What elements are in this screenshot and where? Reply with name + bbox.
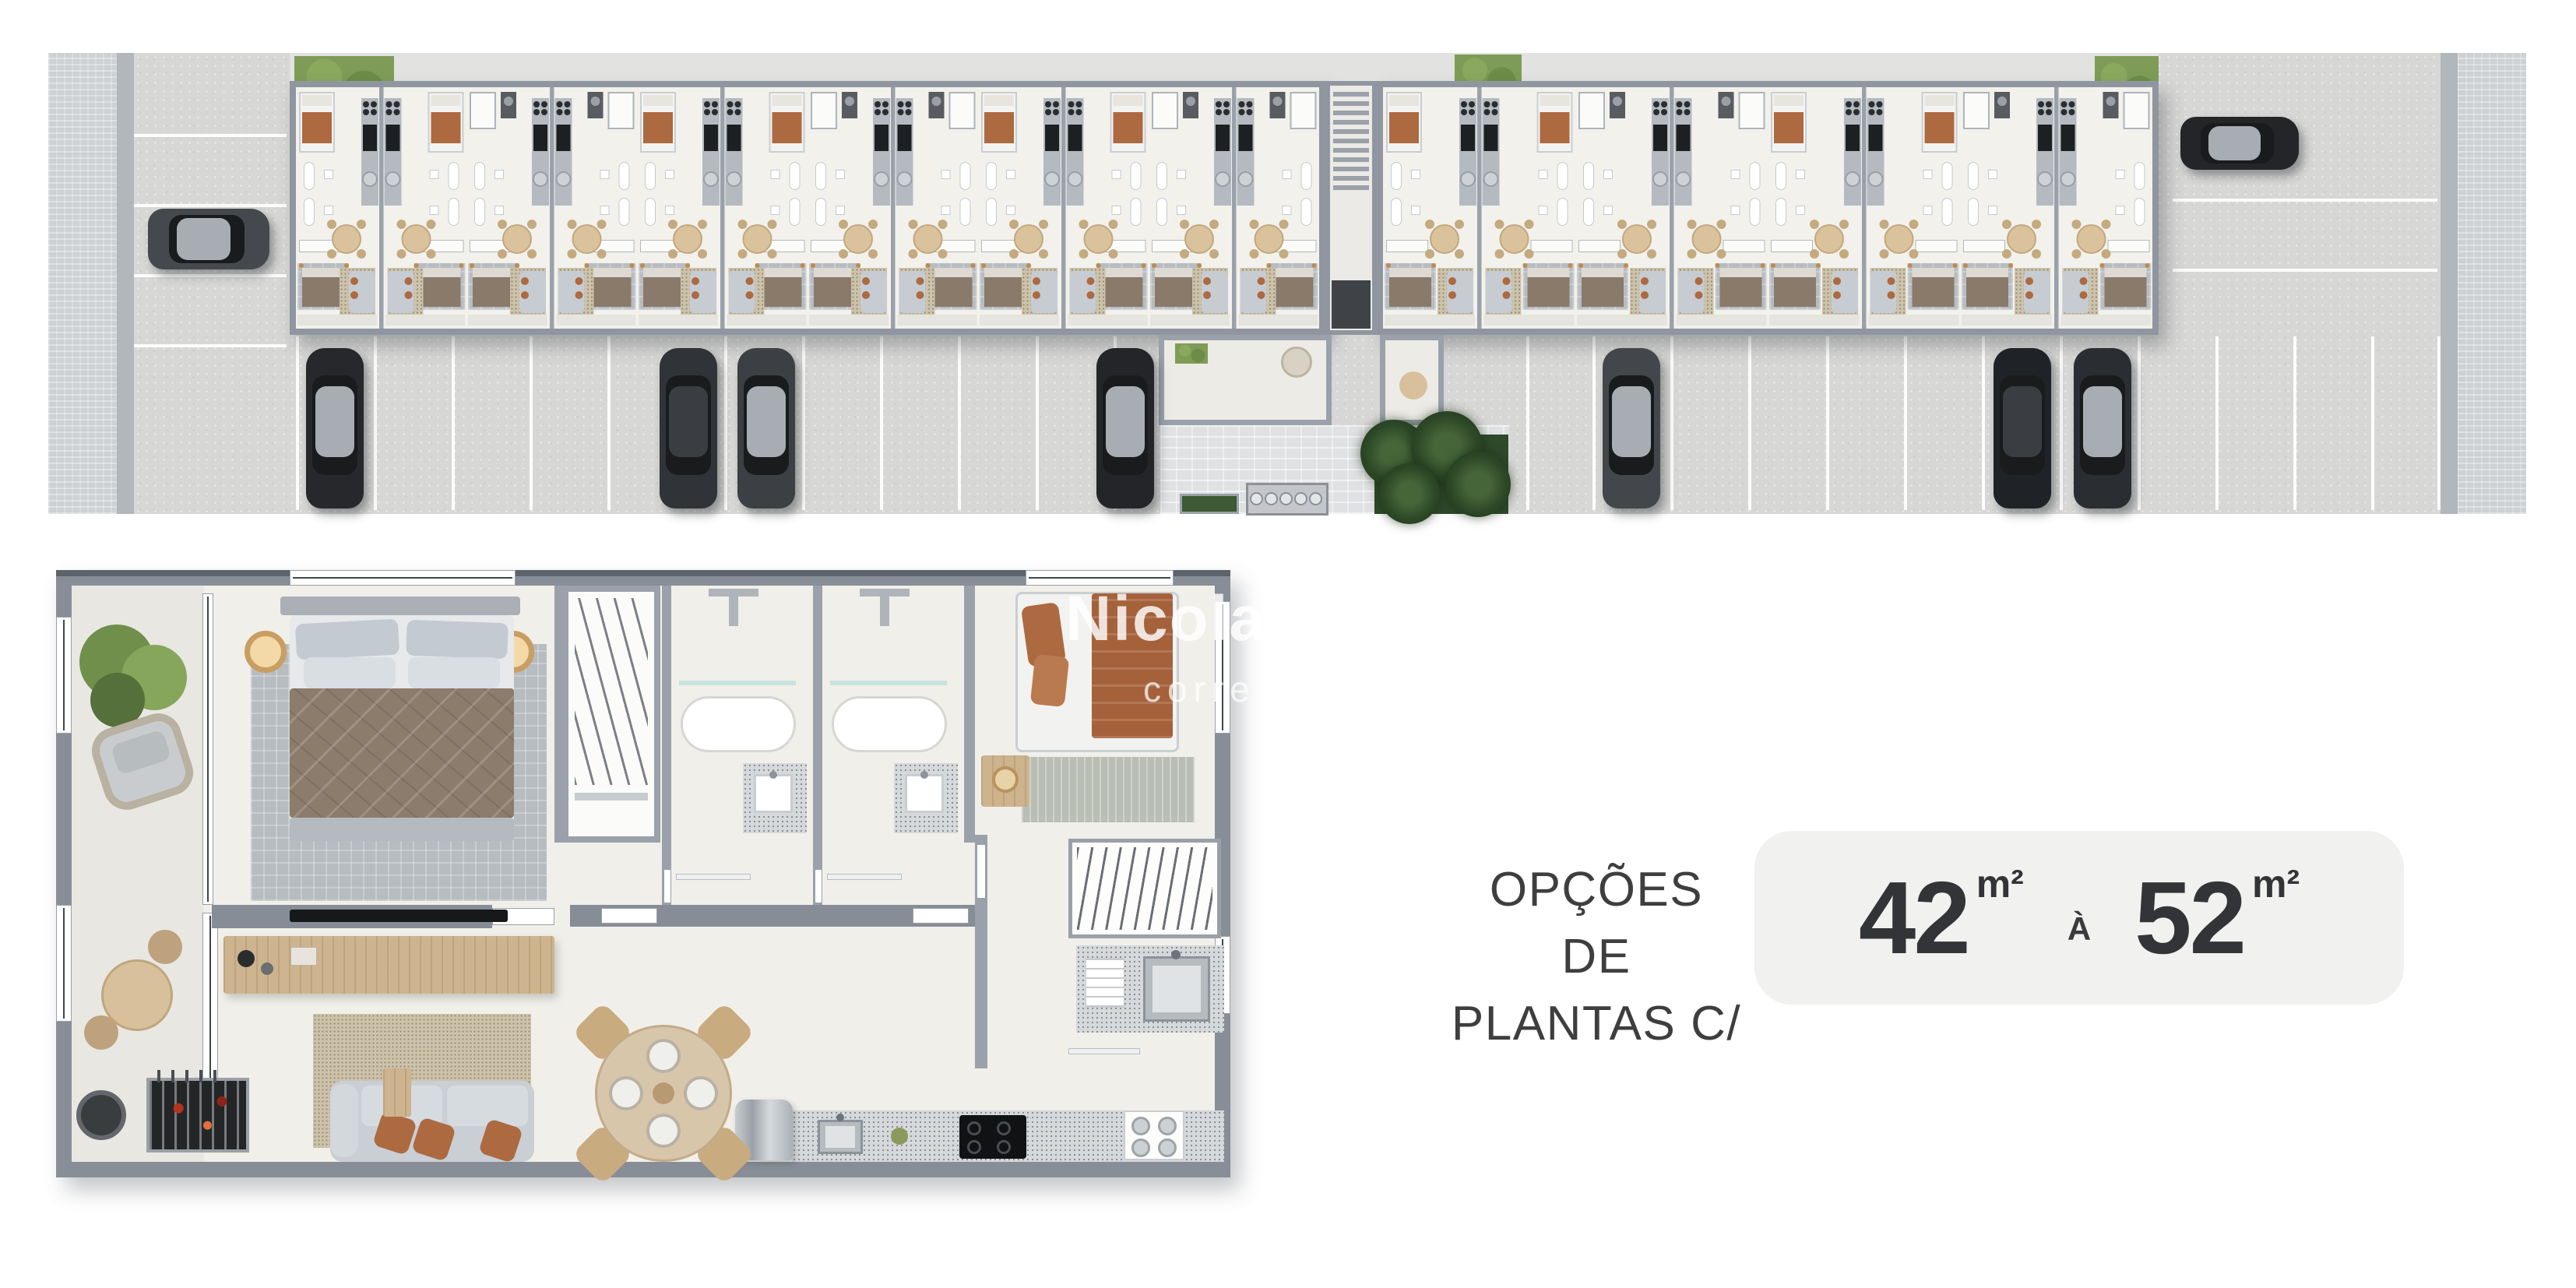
unit-oven [533,125,547,151]
unit-bathtub [789,162,800,190]
unit-module [637,87,723,329]
parking-line [802,336,805,510]
unit-bed-pillow [1100,268,1142,277]
unit-cooktop-burner [1869,101,1875,107]
unit-dining-table [1692,224,1722,254]
terrace-stool [148,930,182,964]
sofa-armrest [330,1084,358,1157]
unit-bathtub [448,198,459,226]
unit-drying-rack [607,92,634,129]
unit-bed-pillow [1924,95,1954,106]
window-pane [1029,577,1170,579]
unit-sink [665,170,674,179]
caption: OPÇÕES DE PLANTAS C/ 42 m² À 52 m² [1448,825,2430,1012]
bedroom2-rug [1022,757,1195,822]
unit-lamp [2008,263,2013,268]
unit-sofa-pillow [746,291,754,299]
unit-counter-pot [1068,171,1083,187]
unit-cooktop-burner [363,109,369,115]
parking-line [1670,336,1673,510]
unit-dining-chair [1810,249,1819,259]
car-roof [1106,386,1145,457]
unit-sofa-pillow [2080,291,2088,299]
plate [1131,1117,1150,1135]
unit-dining-chair [1279,249,1289,259]
unit-sink [1988,206,1997,215]
bathtub [832,696,947,752]
parking-line [1592,336,1596,510]
bed-foot-bench [290,818,514,841]
unit-cooktop-burner [1484,109,1490,115]
console-decor [238,950,255,967]
unit-washer-lid [1721,97,1730,106]
unit-lamp [299,263,304,268]
unit-oven [557,125,571,151]
unit-dining-chair [1209,249,1219,259]
gas-bottle [1294,492,1307,505]
gas-bottle [1309,492,1322,505]
glass-shelf [830,681,947,685]
unit-bathtub [1391,162,1402,190]
unit-cooktop-burner [1869,109,1875,115]
unit-sofa-pillow [575,277,583,285]
building-right-wing [1377,81,2159,335]
unit-cooktop-burner [875,109,881,115]
unit-dining-chair [397,249,406,259]
unit-sofa-pillow [521,291,529,299]
glass-pane [207,596,209,902]
area-min-value: 42 [1859,859,1969,977]
unit-cooktop-burner [704,109,710,115]
window-pane [293,577,512,579]
unit-cooktop-burner [1053,109,1059,115]
unit-dining-chair [527,220,537,229]
unit-dining-chair [1455,220,1464,229]
unit-bed-blanket [772,112,801,143]
unit-cooktop-burner [1677,109,1683,115]
unit-counter-pot [703,171,719,187]
unit-dining-chair [327,249,336,259]
window-opening [56,617,72,734]
caption-title-line2: PLANTAS C/ [1448,991,1744,1057]
stairs-step [1333,111,1369,115]
unit-oven [1653,125,1667,151]
unit-dining-chair [2002,220,2011,229]
unit-counter-pot [362,171,378,187]
unit-sink [429,170,438,179]
unit-sofa-pillow [1087,291,1095,299]
bathtub [681,696,796,752]
unit-lamp [970,263,975,268]
unit-washer-lid [1613,97,1622,106]
unit-dining-table [1884,224,1914,254]
sink-faucet [769,771,777,779]
unit-dining-chair [1687,220,1697,229]
unit-closet [1723,240,1765,252]
unit-dining-table [402,224,431,254]
unit-cooktop-burner [1247,109,1253,115]
unit-counter-pot [1044,171,1060,187]
gas-bottle [1265,492,1278,505]
unit-cooktop-burner [2038,101,2044,107]
unit-counter-pot [1460,171,1476,187]
sink-faucet [836,1114,844,1121]
unit-sink [494,170,504,179]
terrace-chair [1281,347,1312,378]
unit-dining-chair [1250,249,1259,259]
unit-cooktop-burner [1223,101,1230,107]
unit-bathtub [618,162,629,190]
unit-bathtub [1391,198,1402,226]
unit-bathtub [645,198,656,226]
table-centerpiece [653,1082,674,1104]
unit-sink [2115,206,2124,215]
unit-cooktop-burner [2069,101,2075,107]
unit-bed-pillow [772,95,801,106]
unit-bed-blanket [1113,112,1142,143]
console-decor [290,947,317,966]
unit-lamp [1311,263,1316,268]
unit-dining-chair [768,249,777,259]
unit-cooktop-burner [898,109,904,115]
unit-patio [1068,315,1148,326]
unit-oven [875,125,889,151]
rack-slats [1077,847,1212,930]
unit-dining-chair [1839,249,1849,259]
bathroom-wall [813,586,822,905]
counter-plant [891,1128,908,1145]
unit-sink [1411,170,1420,179]
parked-car [2074,348,2131,509]
unit-dining-chair [527,249,537,259]
parking-line [2173,199,2437,202]
unit-bathtub [1968,198,1979,226]
unit-bathtub [645,162,656,190]
unit-counter-pot [556,171,572,187]
cooktop [959,1115,1026,1159]
unit-sink [324,170,333,179]
unit-lamp [1152,263,1156,268]
unit-cooktop-burner [1684,109,1691,115]
bed-pillow [406,620,509,660]
unit-cooktop-burner [1045,101,1051,107]
unit-bathtub [1300,162,1311,190]
unit-bathtub [959,162,970,190]
parking-line [958,336,961,510]
unit-sink [1603,206,1613,215]
unit-sofa-pillow [1695,277,1703,285]
window-pane [63,620,65,730]
closet [562,586,660,843]
unit-module [1064,87,1149,329]
unit-sofa-pillow [2025,291,2033,299]
unit-sofa-pillow [862,291,870,299]
stairs-step [1333,176,1369,181]
unit-patio [1150,315,1230,326]
table-lamp [992,766,1019,793]
unit-sofa-pillow [1203,291,1211,299]
terrace-bush [1175,343,1208,364]
unit-dining-chair [597,220,607,229]
drying-rack [1068,839,1221,938]
unit-module [2057,87,2153,329]
unit-bathtub [1156,162,1167,190]
car-roof [177,218,231,260]
parking-line [1526,336,1529,510]
unit-bed-pillow [930,268,972,277]
unit-cooktop-burner [386,109,392,115]
unit-bathtub [1557,162,1568,190]
back-sidewalk [290,53,2159,84]
unit-sink [600,206,609,215]
unit-bathtub [618,198,629,226]
caption-title: OPÇÕES DE PLANTAS C/ [1448,857,1744,1057]
unit-closet [1530,240,1572,252]
unit-bathtub [474,162,485,190]
unit-dining-chair [868,220,878,229]
unit-counter-pot [1676,171,1691,187]
unit-oven [1068,125,1082,151]
unit-bathtub [986,162,997,190]
parked-car [2180,117,2299,170]
unit-cooktop-burner [565,109,571,115]
unit-cooktop-burner [898,101,904,107]
parking-line [134,344,287,347]
unit-cooktop-burner [541,109,547,115]
unit-drying-rack [948,92,975,129]
unit-cooktop-burner [1484,101,1490,107]
unit-bed-pillow [1774,95,1804,106]
unit-oven [704,125,718,151]
unit-bed-pillow [589,268,631,277]
tv-console [223,936,554,994]
unit-dining-chair [1209,220,1219,229]
watermark: Nicolas corre [1065,582,1304,710]
sofa [330,1081,534,1162]
sink-faucet [920,771,928,779]
car-roof [2003,386,2042,457]
unit-cooktop-burner [533,101,540,107]
parking-line [1982,336,1985,510]
unit-cooktop-burner [1068,101,1075,107]
unit-washer-lid [1186,97,1195,106]
unit-dining-chair [1425,220,1434,229]
unit-closet [1771,240,1813,252]
parking-line [2215,336,2219,510]
unit-cooktop-burner [1653,101,1659,107]
storage-room [1332,280,1371,329]
charcoal-grill [146,1078,249,1153]
unit-bed-pillow [431,95,460,106]
unit-dining-chair [668,220,677,229]
unit-drying-rack [1963,92,1990,129]
unit-sink [2115,170,2124,179]
unit-lamp [1907,263,1912,268]
unit-patio [1484,315,1575,326]
unit-sink [1730,206,1740,215]
unit-sofa-pillow [1087,277,1095,285]
unit-patio [297,315,377,326]
unit-module [978,87,1064,329]
unit-dining-chair [1039,249,1048,259]
unit-bathtub [1775,198,1786,226]
unit-cooktop-burner [2061,109,2067,115]
unit-sink [770,206,779,215]
stairs-step [1333,92,1369,97]
unit-dining-chair [2102,220,2111,229]
unit-dining-table [502,224,532,254]
unit-sofa-pillow [1888,277,1895,285]
unit-bed-pillow [1389,268,1431,277]
unit-dining-table [1500,224,1529,254]
unit-bed-pillow [473,268,515,277]
unit-sofa-pillow [1503,291,1511,299]
unit-dining-table [1430,224,1459,254]
unit-cooktop-burner [1846,101,1852,107]
unit-sofa-pillow [1888,291,1895,299]
interior-wall [554,586,564,843]
unit-bed-pillow [984,95,1014,106]
unit-cooktop-burner [1461,109,1467,115]
unit-closet [1386,240,1428,252]
unit-patio [1769,315,1860,326]
unit-bathtub [1130,162,1141,190]
unit-module [1480,87,1576,329]
unit-cooktop-burner [906,101,912,107]
unit-counter-pot [385,171,401,187]
unit-patio [1869,315,1959,326]
unit-counter-pot [533,171,548,187]
window-opening [290,570,516,586]
unit-bathtub [1968,162,1979,190]
unit-patio [1677,315,1767,326]
parking-line [1904,336,1907,510]
parking-line [880,336,883,510]
grill-tool [157,1070,160,1082]
unit-dining-chair [1180,249,1189,259]
unit-module [1149,87,1234,329]
unit-bed-pillow [1113,95,1142,106]
place-setting [609,1076,643,1110]
unit-sofa-pillow [521,277,529,285]
unit-dining-table [2077,224,2106,254]
unit-sofa-pillow [350,277,358,285]
unit-oven [1461,125,1475,151]
unit-sofa-pillow [917,277,924,285]
unit-counter-pot [2037,171,2053,187]
bed-pillow [304,657,396,688]
car-roof [2208,126,2261,160]
unit-module [466,87,552,329]
place-setting [646,1114,681,1148]
unit-dining-chair [1180,220,1189,229]
unit-dining-chair [738,249,748,259]
unit-closet [2107,240,2149,252]
door-opening [815,869,822,903]
unit-bed-pillow [1271,268,1313,277]
unit-cooktop-burner [1661,109,1667,115]
unit-patio [386,315,466,326]
area-min-unit-icon: m² [1976,861,2024,906]
unit-cooktop-burner [882,109,889,115]
unit-sink [600,170,609,179]
unit-dining-chair [357,249,366,259]
unit-dining-chair [1810,220,1819,229]
unit-module [1575,87,1672,329]
unit-lamp [629,263,634,268]
parking-line [607,336,611,510]
unit-oven [1846,125,1860,151]
unit-drying-rack [1152,92,1178,129]
unit-bathtub [1941,198,1952,226]
unit-dining-chair [668,249,677,259]
unit-dining-chair [1009,249,1019,259]
bed-pillow [295,619,399,660]
unit-dining-chair [1647,249,1656,259]
unit-dining-chair [597,249,607,259]
unit-bathtub [2134,198,2145,226]
unit-sink [1988,170,1997,179]
unit-lamp [800,263,804,268]
unit-dining-chair [427,220,436,229]
unit-bed-pillow [643,268,685,277]
common-terrace [1159,335,1332,425]
unit-dining-chair [768,220,777,229]
unit-dining-chair [2032,220,2041,229]
unit-sofa-pillow [575,291,583,299]
unit-cooktop-burner [1045,109,1051,115]
unit-dining-table [332,224,361,254]
parked-car [737,348,795,509]
unit-cooktop-burner [1469,101,1475,107]
parked-car [1603,348,1660,509]
unit-sofa-pillow [2025,277,2033,285]
unit-cooktop-burner [1239,109,1245,115]
unit-dining-chair [1717,249,1726,259]
unit-cooktop-burner [394,101,400,107]
unit-cooktop-burner [735,101,741,107]
service-sink-basin [1153,966,1201,1012]
site-plan [48,23,2526,514]
parking-line [2060,336,2063,510]
unit-sofa-pillow [1641,291,1649,299]
unit-bathtub [815,198,826,226]
unit-cooktop-burner [2046,109,2052,115]
bath-sink [754,774,793,813]
unit-oven [1239,125,1253,151]
unit-bed-pillow [1582,268,1624,277]
unit-sofa-pillow [1448,277,1456,285]
unit-counter-pot [2060,171,2076,187]
unit-dining-chair [1425,249,1434,259]
unit-dining-chair [1109,220,1118,229]
unit-cooktop-burner [557,101,563,107]
unit-lamp [1963,263,1968,268]
unit-sink [1411,206,1420,215]
unit-washer-lid [1997,97,2007,106]
unit-dining-table [1255,224,1284,254]
unit-bed-blanket [1540,112,1569,143]
unit-module [296,87,382,329]
unit-sink [1538,206,1547,215]
kerb-left [117,53,134,514]
unit-sink [1111,206,1121,215]
unit-cooktop-burner [727,101,734,107]
unit-dining-table [1184,224,1214,254]
unit-bathtub [1557,198,1568,226]
unit-dining-table [843,224,873,254]
unit-patio [557,315,636,326]
